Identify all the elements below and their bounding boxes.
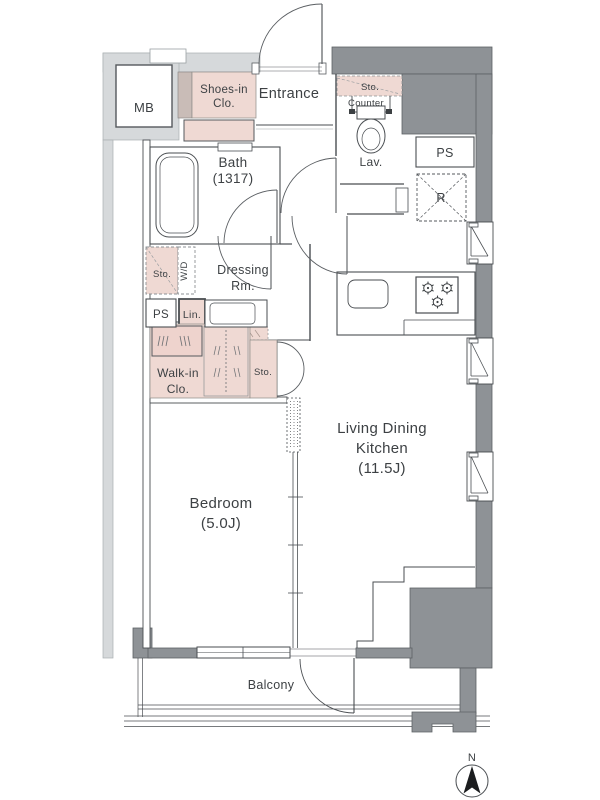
kitchen-counter bbox=[337, 272, 475, 335]
label-lavatory: Lav. bbox=[360, 155, 383, 169]
storage-double-doors bbox=[277, 342, 304, 396]
label-meter-box: MB bbox=[134, 100, 154, 115]
entrance-door bbox=[252, 4, 326, 74]
label-ldk-2: Kitchen bbox=[356, 440, 408, 457]
label-refrigerator: R bbox=[436, 191, 445, 205]
vanity bbox=[205, 300, 267, 327]
label-walkin-1: Walk-in bbox=[157, 366, 199, 380]
meter-box bbox=[116, 65, 172, 127]
label-dressing-1: Dressing bbox=[217, 263, 269, 277]
label-pipe-space-right: PS bbox=[436, 146, 453, 160]
bedroom-sliding-window bbox=[197, 647, 290, 658]
right-windows bbox=[467, 222, 493, 501]
compass bbox=[456, 765, 488, 797]
label-ldk-3: (11.5J) bbox=[358, 460, 406, 477]
bathtub bbox=[156, 153, 198, 237]
sliding-partition bbox=[287, 398, 303, 648]
floor-plan: MB Shoes-in Clo. Entrance Sto. Counter L… bbox=[0, 0, 600, 800]
label-shoes-closet-1: Shoes-in bbox=[200, 84, 248, 96]
balcony-glass-door bbox=[290, 649, 356, 713]
label-lav-storage: Sto. bbox=[361, 82, 379, 93]
door-pocket bbox=[287, 398, 300, 452]
label-dressing-2: Rm. bbox=[231, 279, 255, 293]
balcony-wall-bottom bbox=[412, 712, 476, 732]
duct bbox=[396, 188, 408, 212]
shoes-cabinet bbox=[184, 120, 254, 141]
label-pipe-space-left: PS bbox=[153, 309, 169, 321]
label-lav-counter: Counter bbox=[348, 98, 384, 109]
label-walkin-2: Clo. bbox=[167, 382, 190, 396]
label-shoes-closet-2: Clo. bbox=[213, 98, 235, 110]
shoes-closet-strip bbox=[178, 72, 192, 118]
label-bath-1: Bath bbox=[219, 155, 248, 170]
label-dressing-storage: Sto. bbox=[153, 269, 171, 280]
lav-door bbox=[281, 158, 336, 213]
label-ldk-1: Living Dining bbox=[337, 420, 427, 437]
label-bedroom-2: (5.0J) bbox=[201, 515, 241, 532]
label-linen: Lin. bbox=[183, 309, 201, 321]
label-bath-2: (1317) bbox=[213, 171, 254, 186]
label-washer-dryer: W/D bbox=[179, 261, 190, 280]
label-north: N bbox=[468, 752, 476, 764]
toilet bbox=[357, 106, 385, 153]
balcony-wall-right bbox=[460, 668, 476, 714]
window-2 bbox=[467, 338, 493, 384]
walkin-hanger-box bbox=[152, 326, 202, 356]
window-1 bbox=[467, 222, 493, 264]
label-hall-storage: Sto. bbox=[254, 367, 272, 378]
corridor-notch bbox=[150, 49, 186, 63]
label-bedroom-1: Bedroom bbox=[190, 495, 253, 512]
label-balcony: Balcony bbox=[248, 678, 295, 692]
floor-plan-page: MB Shoes-in Clo. Entrance Sto. Counter L… bbox=[0, 0, 600, 800]
label-entrance: Entrance bbox=[259, 86, 319, 102]
ldk-door bbox=[292, 216, 347, 274]
window-3 bbox=[467, 452, 493, 501]
bath-counter bbox=[218, 143, 252, 151]
walkin-rod-panel bbox=[204, 326, 248, 396]
